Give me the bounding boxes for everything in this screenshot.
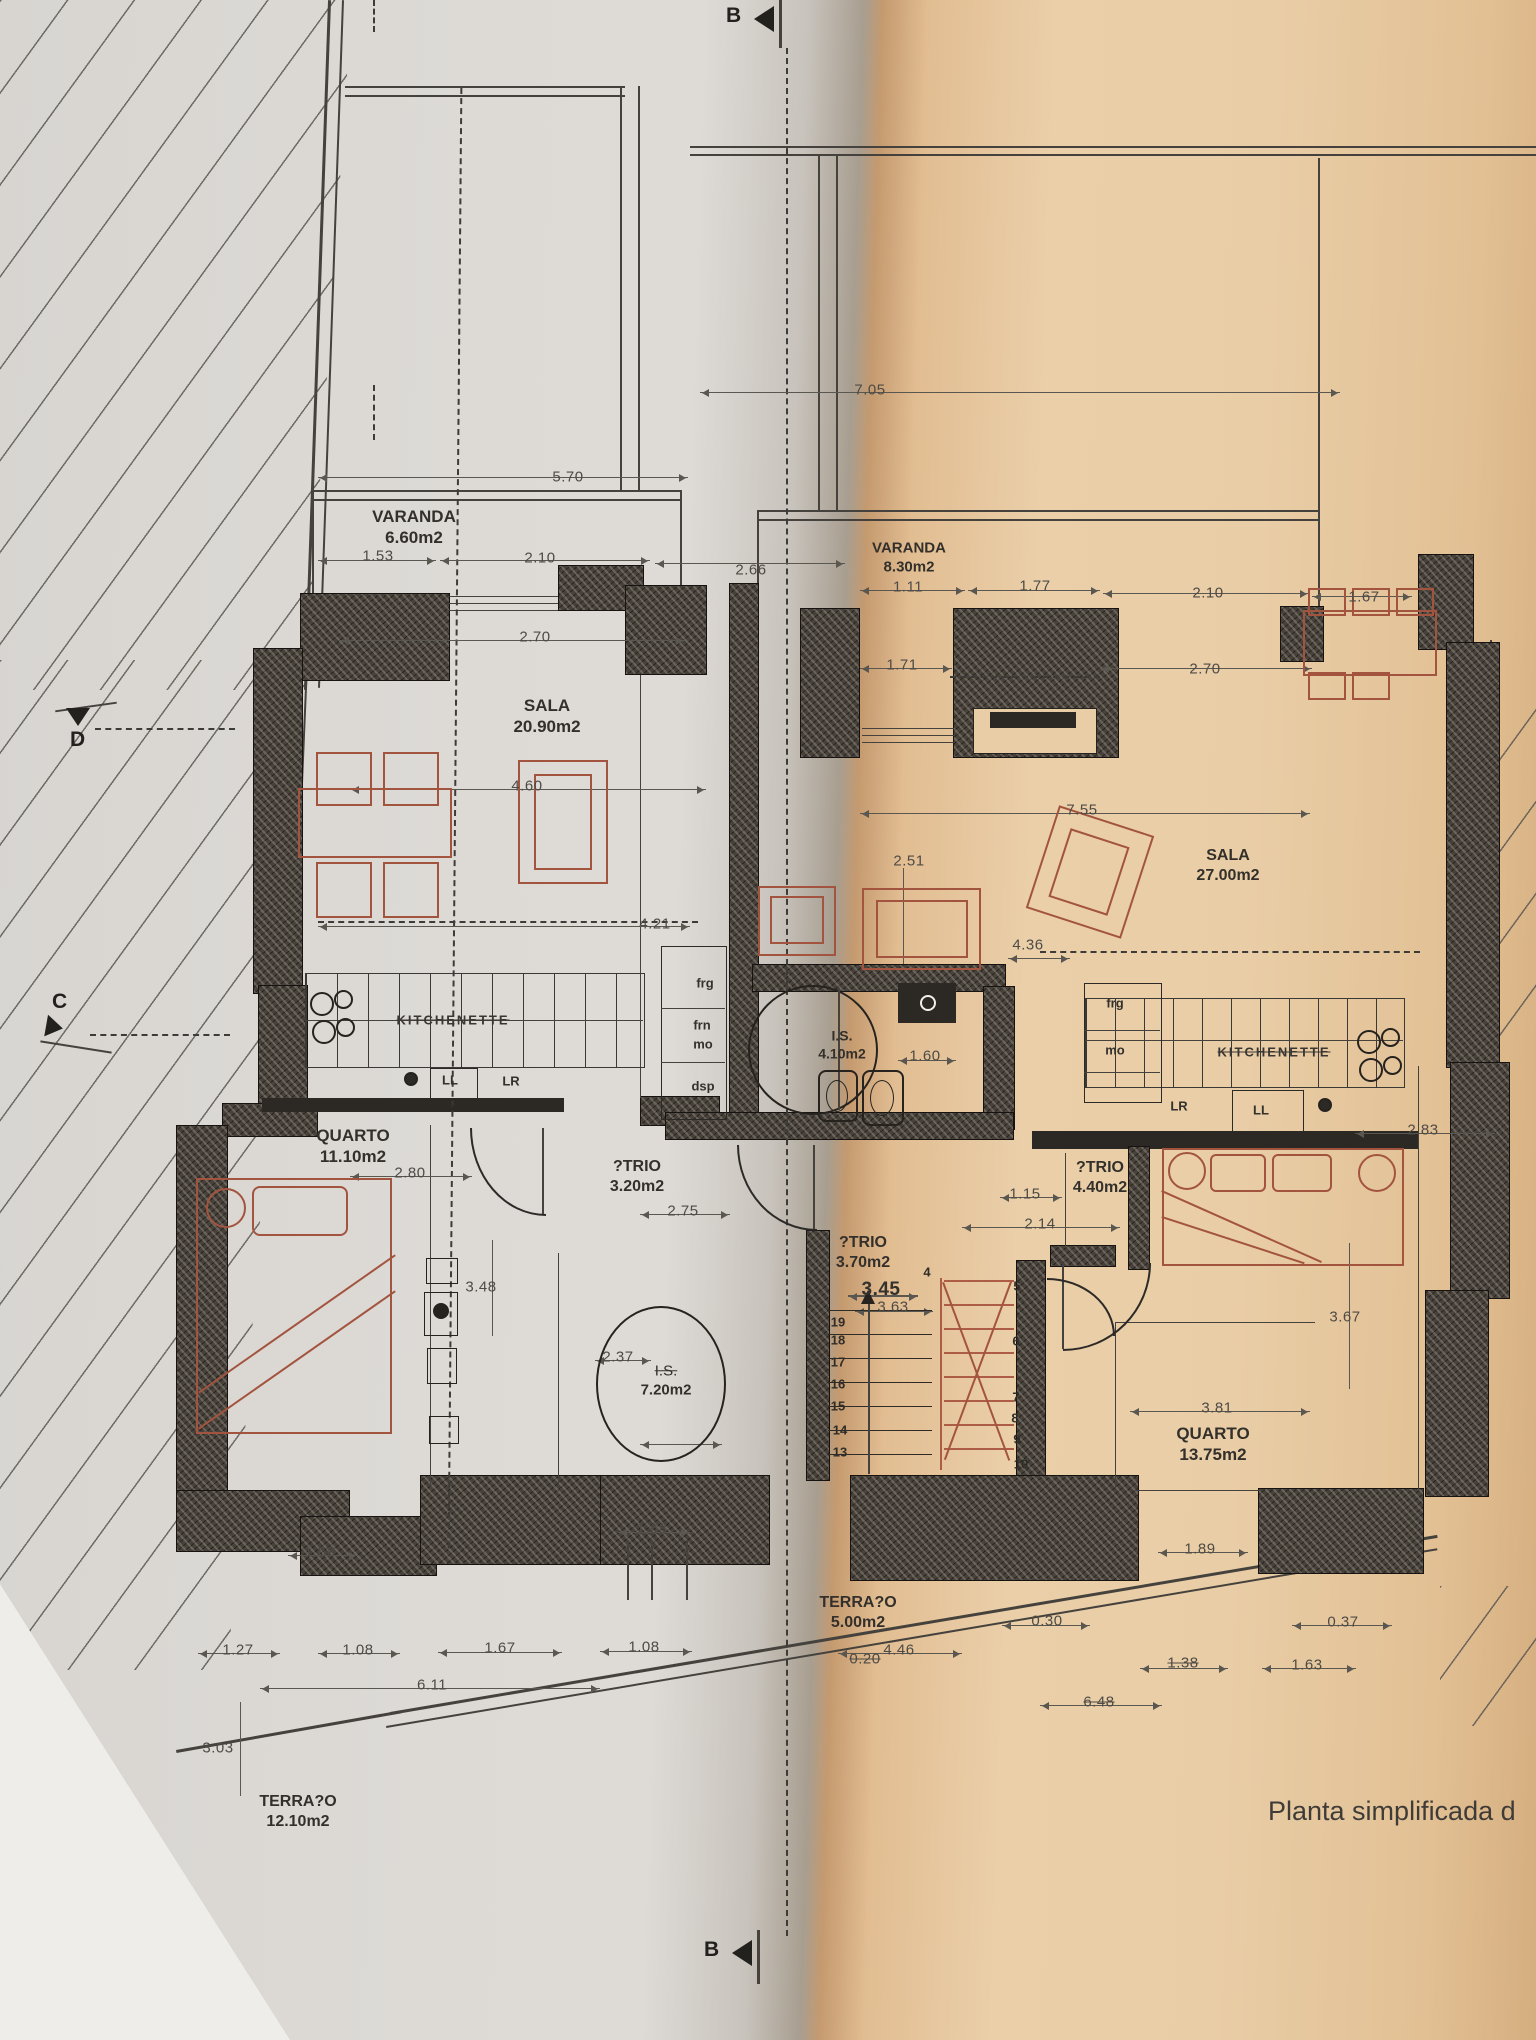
stair-number: 18 [831, 1333, 845, 1348]
room-label: I.S.7.20m2 [641, 1362, 692, 1400]
room-name: ?TRIO [610, 1157, 664, 1177]
dimension-label: 2.10 [1192, 585, 1223, 602]
dimension-label: 3.67 [1329, 1309, 1360, 1326]
stair-number: 13 [833, 1445, 847, 1460]
room-area: 4.40m2 [1073, 1178, 1127, 1198]
dimension-label: 2.10 [524, 550, 555, 567]
kitchenette-label: KITCHENETTE [397, 1013, 510, 1028]
room-label: VARANDA6.60m2 [372, 506, 456, 549]
dimension-label: 1.63 [1291, 1657, 1322, 1674]
room-name: TERRA?O [259, 1792, 336, 1812]
appliance-label: LL [1253, 1103, 1269, 1118]
dimension-label: 2.51 [893, 853, 924, 870]
dimension-label: 2.66 [735, 562, 766, 579]
dimension-label: 1.67 [484, 1640, 515, 1657]
floor-plan-photo: B B D C Planta simplificada d VARANDA6.6… [0, 0, 1536, 2040]
room-area: 4.10m2 [818, 1045, 865, 1063]
appliance-label: LL [442, 1073, 458, 1088]
dimension-label: 3.48 [465, 1279, 496, 1296]
dimension-label: 5.70 [552, 469, 583, 486]
room-label: TERRA?O12.10m2 [259, 1792, 336, 1832]
appliance-label: frg [1106, 996, 1123, 1011]
dimension-label: 2.75 [667, 1203, 698, 1220]
stair-number: 15 [831, 1399, 845, 1414]
dimension-label: 1.67 [1348, 589, 1379, 606]
dimension-label: 1.53 [362, 548, 393, 565]
dimension-label: 4.60 [511, 778, 542, 795]
generated-labels: VARANDA6.60m2VARANDA8.30m2SALA20.90m2SAL… [0, 0, 1536, 2040]
stair-number: 9 [1013, 1432, 1020, 1447]
room-area: 3.20m2 [610, 1177, 664, 1197]
stair-number: 16 [831, 1377, 845, 1392]
appliance-label: LR [502, 1074, 519, 1089]
dimension-label: 3.63 [877, 1299, 908, 1316]
appliance-label: mo [1105, 1043, 1125, 1058]
dimension-label: 7.55 [1066, 802, 1097, 819]
stair-number: 19 [831, 1315, 845, 1330]
room-name: I.S. [818, 1028, 865, 1046]
room-name: VARANDA [372, 506, 456, 527]
dimension-label: 6.11 [417, 1677, 447, 1694]
dimension-label: 2.80 [394, 1165, 425, 1182]
appliance-label: dsp [691, 1079, 714, 1094]
room-area: 5.00m2 [819, 1613, 896, 1633]
dimension-label: 4.21 [639, 916, 670, 933]
dimension-label: 1.38 [1167, 1655, 1198, 1672]
room-label: ?TRIO3.70m2 [836, 1233, 890, 1273]
dimension-label: 2.70 [519, 629, 550, 646]
dimension-label: 1.60 [909, 1048, 940, 1065]
room-area: 12.10m2 [259, 1812, 336, 1832]
stair-number: 4 [923, 1265, 930, 1280]
room-name: QUARTO [316, 1125, 389, 1146]
dimension-label: 1.68 [636, 1521, 667, 1538]
dimension-label: 4.46 [883, 1642, 914, 1659]
dimension-label: 3.81 [1201, 1400, 1232, 1417]
room-area: 7.20m2 [641, 1381, 692, 1400]
dimension-label: 2.70 [1189, 661, 1220, 678]
room-name: ?TRIO [1073, 1158, 1127, 1178]
room-label: TERRA?O5.00m2 [819, 1593, 896, 1633]
room-area: 8.30m2 [872, 558, 946, 577]
room-label: QUARTO11.10m2 [316, 1125, 389, 1168]
dimension-label: 1.77 [1019, 578, 1050, 595]
dimension-label: 0.37 [1327, 1614, 1358, 1631]
dimension-label: 2.83 [1407, 1122, 1438, 1139]
dimension-label: 3.03 [202, 1740, 233, 1757]
room-area: 13.75m2 [1176, 1444, 1249, 1465]
dimension-label: 1.71 [886, 657, 917, 674]
room-area: 6.60m2 [372, 527, 456, 548]
stair-number: 17 [831, 1355, 845, 1370]
stair-number: 14 [833, 1423, 847, 1438]
dimension-label: 1.27 [222, 1642, 253, 1659]
dimension-label: 6.48 [1083, 1694, 1114, 1711]
dimension-label: 1.08 [342, 1642, 373, 1659]
appliance-label: LR [1170, 1099, 1187, 1114]
dimension-label: 1.89 [1184, 1541, 1215, 1558]
appliance-label: frg [696, 976, 713, 991]
room-area: 3.70m2 [836, 1253, 890, 1273]
room-name: VARANDA [872, 539, 946, 558]
stair-number: 8 [1011, 1411, 1018, 1426]
room-area: 11.10m2 [316, 1146, 389, 1167]
stair-number: 5 [1013, 1279, 1020, 1294]
room-label: VARANDA8.30m2 [872, 539, 946, 577]
room-label: ?TRIO3.20m2 [610, 1157, 664, 1197]
room-name: TERRA?O [819, 1593, 896, 1613]
room-area: 27.00m2 [1196, 866, 1259, 886]
room-area: 20.90m2 [513, 716, 580, 737]
room-label: I.S.4.10m2 [818, 1028, 865, 1063]
room-label: QUARTO13.75m2 [1176, 1423, 1249, 1466]
stair-number: 7 [1012, 1390, 1019, 1405]
stair-number: 10 [1014, 1457, 1028, 1472]
room-name: I.S. [641, 1362, 692, 1381]
dimension-label: 1.11 [893, 579, 923, 596]
appliance-label: frn [693, 1018, 710, 1033]
dimension-label: 4.36 [1012, 937, 1043, 954]
dimension-label: 0.30 [1031, 1613, 1062, 1630]
stair-number: 6 [1012, 1334, 1019, 1349]
dimension-label: 0.20 [849, 1651, 880, 1668]
room-name: QUARTO [1176, 1423, 1249, 1444]
kitchenette-label: KITCHENETTE [1218, 1045, 1331, 1060]
room-label: SALA27.00m2 [1196, 846, 1259, 886]
appliance-label: mo [693, 1037, 713, 1052]
room-label: SALA20.90m2 [513, 695, 580, 738]
room-label: ?TRIO4.40m2 [1073, 1158, 1127, 1198]
dimension-label: 1.68 [304, 1544, 335, 1561]
dimension-label: 7.05 [854, 382, 885, 399]
dimension-label: 2.37 [602, 1349, 633, 1366]
dimension-label: 2.14 [1024, 1216, 1055, 1233]
room-name: SALA [513, 695, 580, 716]
dimension-label: 1.08 [628, 1639, 659, 1656]
room-name: SALA [1196, 846, 1259, 866]
dimension-label: 1.15 [1009, 1186, 1040, 1203]
room-name: ?TRIO [836, 1233, 890, 1253]
